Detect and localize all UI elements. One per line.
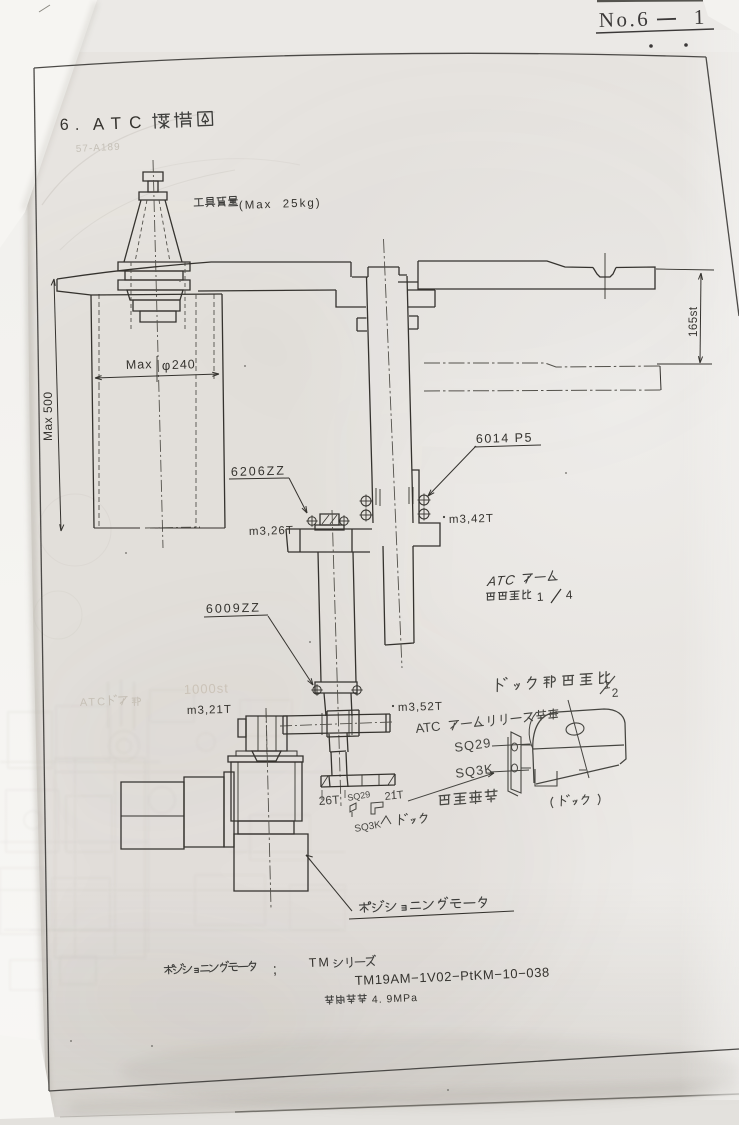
svg-text:240: 240: [172, 357, 196, 372]
svg-text:4. 9MPa: 4. 9MPa: [372, 992, 419, 1006]
svg-text:φ: φ: [162, 358, 171, 373]
svg-text:6: 6: [59, 117, 69, 134]
svg-text:6014 P5: 6014 P5: [476, 431, 533, 446]
svg-text:ATC: ATC: [415, 718, 441, 736]
svg-text:m3,42T: m3,42T: [449, 513, 494, 526]
svg-text:ATC: ATC: [486, 572, 517, 589]
svg-text:Max: Max: [126, 357, 153, 372]
svg-text:;: ;: [272, 962, 277, 978]
svg-text:.: .: [74, 117, 79, 134]
svg-text:1: 1: [694, 5, 705, 29]
svg-text:m3,21T: m3,21T: [187, 704, 232, 717]
svg-text:6206ZZ: 6206ZZ: [231, 464, 286, 479]
svg-text:m3,52T: m3,52T: [398, 701, 443, 714]
svg-text:No.6: No.6: [599, 7, 651, 32]
svg-text:165st: 165st: [688, 306, 700, 337]
svg-text:ATC: ATC: [92, 113, 150, 134]
svg-text:2: 2: [611, 686, 619, 700]
svg-text:57-A189: 57-A189: [76, 142, 121, 155]
svg-text:ATC: ATC: [80, 696, 108, 709]
svg-text:1000st: 1000st: [184, 680, 230, 697]
svg-text:Max 500: Max 500: [41, 391, 55, 441]
svg-text:1: 1: [536, 590, 544, 604]
svg-text:26T: 26T: [318, 793, 340, 808]
svg-text:4: 4: [565, 588, 573, 602]
svg-text:6009ZZ: 6009ZZ: [206, 601, 261, 616]
svg-text:TM: TM: [309, 955, 332, 970]
svg-text:m3,26T: m3,26T: [249, 525, 294, 538]
